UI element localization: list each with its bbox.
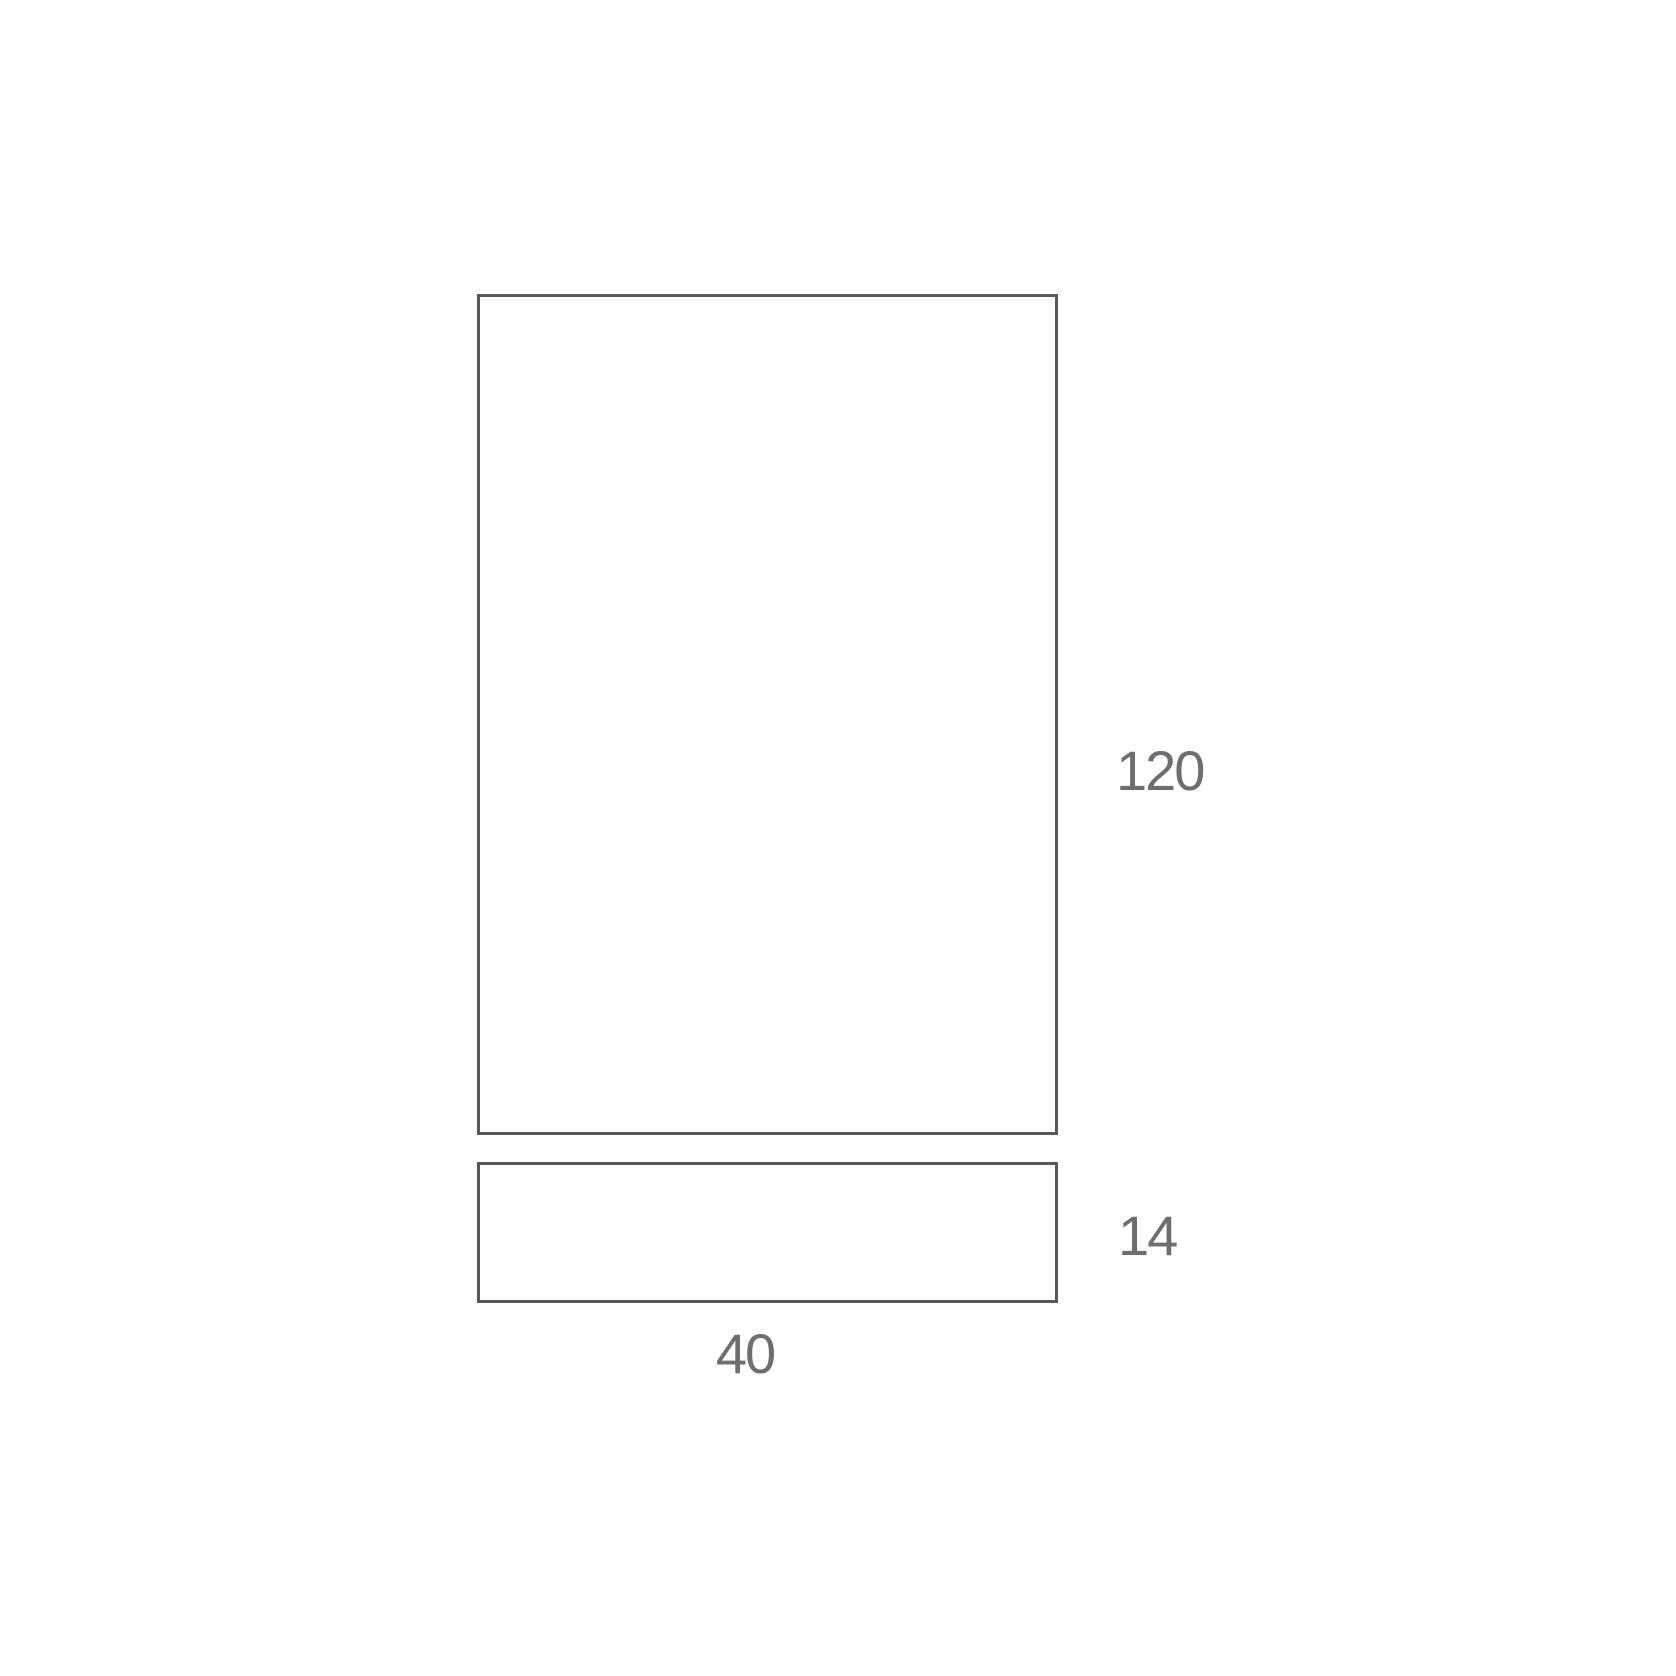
base-height-dimension-label: 14 (1118, 1208, 1176, 1264)
width-dimension-label: 40 (716, 1326, 774, 1382)
height-dimension-label: 120 (1116, 743, 1203, 799)
dimension-diagram: 120 14 40 (0, 0, 1676, 1676)
main-panel-outline (477, 294, 1058, 1135)
base-panel-outline (477, 1162, 1058, 1303)
